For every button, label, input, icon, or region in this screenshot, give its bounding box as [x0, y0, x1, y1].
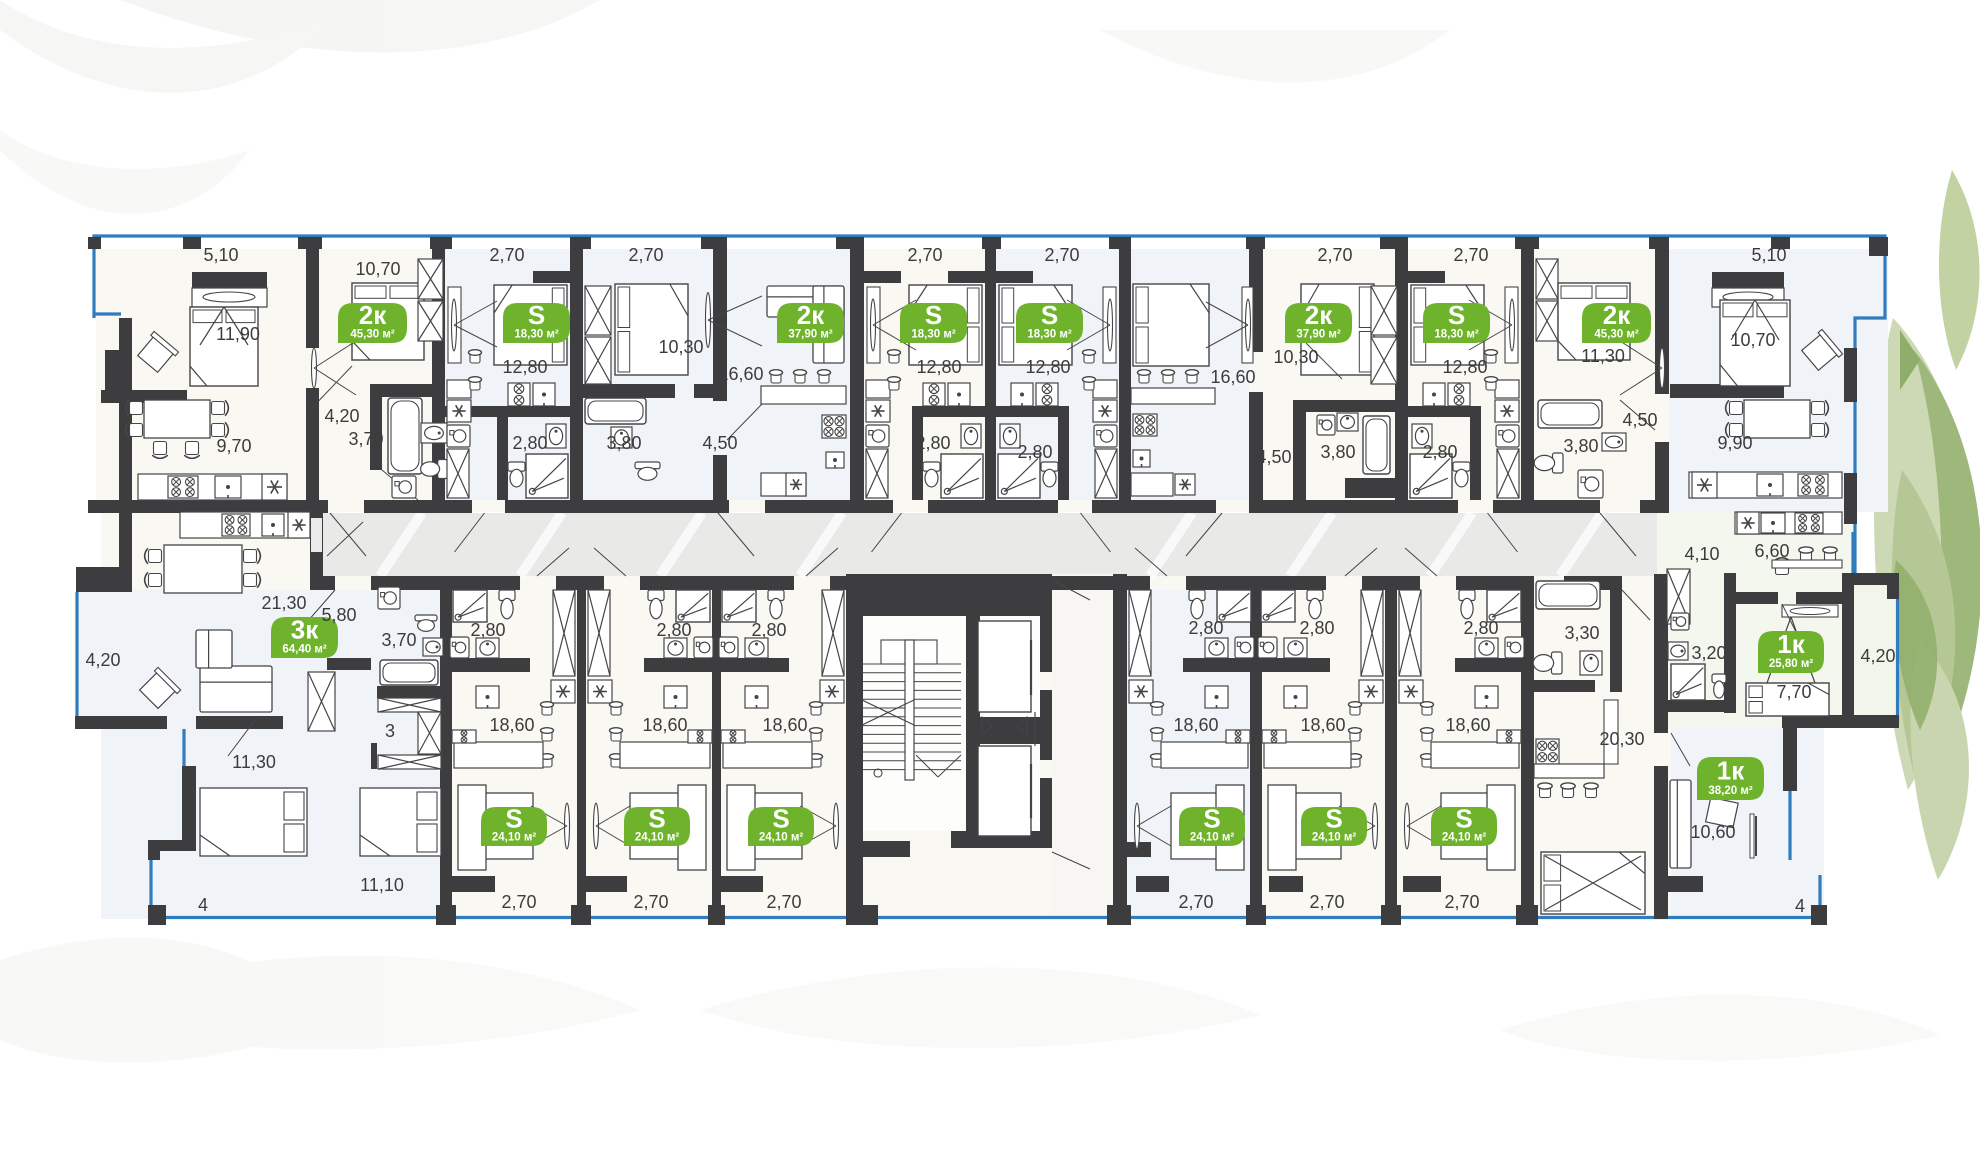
svg-text:S: S: [1455, 803, 1472, 833]
svg-text:4,50: 4,50: [702, 433, 737, 453]
svg-text:2к: 2к: [1603, 300, 1631, 330]
svg-text:12,80: 12,80: [1442, 357, 1487, 377]
svg-text:18,30 м²: 18,30 м²: [1027, 328, 1071, 340]
svg-text:4: 4: [1795, 896, 1805, 916]
svg-text:2,80: 2,80: [656, 620, 691, 640]
svg-text:2к: 2к: [1305, 300, 1333, 330]
svg-text:4,20: 4,20: [324, 406, 359, 426]
svg-text:1к: 1к: [1777, 629, 1805, 659]
svg-text:18,60: 18,60: [762, 715, 807, 735]
svg-text:2,70: 2,70: [907, 245, 942, 265]
svg-text:2,70: 2,70: [501, 892, 536, 912]
svg-text:2,70: 2,70: [1317, 245, 1352, 265]
svg-text:5,10: 5,10: [203, 245, 238, 265]
svg-text:5,80: 5,80: [321, 605, 356, 625]
svg-text:18,60: 18,60: [1300, 715, 1345, 735]
svg-text:10,70: 10,70: [355, 259, 400, 279]
svg-text:3,80: 3,80: [606, 433, 641, 453]
svg-text:9,90: 9,90: [1717, 433, 1752, 453]
svg-text:2,70: 2,70: [489, 245, 524, 265]
svg-text:2,70: 2,70: [1444, 892, 1479, 912]
svg-text:3,20: 3,20: [1691, 643, 1726, 663]
svg-text:2,70: 2,70: [1453, 245, 1488, 265]
svg-text:2к: 2к: [359, 300, 387, 330]
svg-text:3,70: 3,70: [381, 630, 416, 650]
svg-text:S: S: [1325, 803, 1342, 833]
svg-text:7,70: 7,70: [1776, 682, 1811, 702]
svg-text:9,70: 9,70: [216, 436, 251, 456]
svg-text:3,80: 3,80: [1320, 442, 1355, 462]
svg-text:10,70: 10,70: [1730, 330, 1775, 350]
svg-text:2,80: 2,80: [1017, 442, 1052, 462]
svg-text:20,30: 20,30: [1599, 729, 1644, 749]
svg-text:S: S: [925, 300, 942, 330]
svg-text:5,10: 5,10: [1751, 245, 1786, 265]
svg-text:S: S: [1041, 300, 1058, 330]
svg-text:2,80: 2,80: [915, 433, 950, 453]
svg-text:3: 3: [385, 721, 395, 741]
svg-text:2,70: 2,70: [633, 892, 668, 912]
svg-text:2,70: 2,70: [766, 892, 801, 912]
svg-text:18,30 м²: 18,30 м²: [514, 328, 558, 340]
svg-text:4,50: 4,50: [1256, 447, 1291, 467]
svg-text:10,30: 10,30: [658, 337, 703, 357]
svg-text:64,40 м²: 64,40 м²: [282, 643, 326, 655]
svg-text:24,10 м²: 24,10 м²: [1312, 832, 1356, 844]
svg-text:S: S: [505, 803, 522, 833]
svg-text:4: 4: [198, 895, 208, 915]
svg-text:18,60: 18,60: [489, 715, 534, 735]
svg-text:16,60: 16,60: [1210, 367, 1255, 387]
svg-text:2,70: 2,70: [1309, 892, 1344, 912]
svg-text:11,10: 11,10: [360, 875, 404, 895]
svg-text:2,80: 2,80: [1422, 442, 1457, 462]
svg-text:12,80: 12,80: [502, 357, 547, 377]
svg-text:2,80: 2,80: [470, 620, 505, 640]
svg-text:2,70: 2,70: [1044, 245, 1079, 265]
svg-text:24,10 м²: 24,10 м²: [1442, 832, 1486, 844]
svg-text:S: S: [528, 300, 545, 330]
svg-text:11,30: 11,30: [1581, 346, 1625, 366]
svg-text:2,80: 2,80: [751, 620, 786, 640]
svg-text:S: S: [1448, 300, 1465, 330]
svg-text:S: S: [772, 803, 789, 833]
svg-text:18,30 м²: 18,30 м²: [1434, 328, 1478, 340]
svg-text:4,20: 4,20: [85, 650, 120, 670]
svg-text:4,10: 4,10: [1684, 544, 1719, 564]
svg-text:3,30: 3,30: [1564, 623, 1599, 643]
svg-text:4,20: 4,20: [1860, 646, 1895, 666]
svg-text:37,90 м²: 37,90 м²: [1296, 328, 1340, 340]
svg-text:24,10 м²: 24,10 м²: [635, 832, 679, 844]
svg-text:10,30: 10,30: [1273, 347, 1318, 367]
svg-text:3,80: 3,80: [1563, 436, 1598, 456]
svg-text:2,80: 2,80: [512, 433, 547, 453]
svg-text:3,70: 3,70: [348, 429, 383, 449]
svg-text:18,60: 18,60: [1173, 715, 1218, 735]
svg-text:10,60: 10,60: [1690, 822, 1735, 842]
svg-text:2,80: 2,80: [1463, 618, 1498, 638]
svg-text:4,50: 4,50: [1622, 410, 1657, 430]
svg-text:24,10 м²: 24,10 м²: [759, 832, 803, 844]
svg-text:S: S: [1203, 803, 1220, 833]
svg-text:21,30: 21,30: [261, 593, 306, 613]
svg-text:18,60: 18,60: [1445, 715, 1490, 735]
svg-text:24,10 м²: 24,10 м²: [492, 832, 536, 844]
svg-text:S: S: [648, 803, 665, 833]
svg-text:24,10 м²: 24,10 м²: [1190, 832, 1234, 844]
svg-text:2к: 2к: [797, 300, 825, 330]
svg-text:25,80 м²: 25,80 м²: [1769, 658, 1813, 670]
svg-text:2,70: 2,70: [1178, 892, 1213, 912]
svg-text:11,90: 11,90: [216, 324, 260, 344]
svg-text:11,30: 11,30: [232, 752, 276, 772]
svg-text:12,80: 12,80: [1025, 357, 1070, 377]
svg-text:38,20 м²: 38,20 м²: [1708, 785, 1752, 797]
svg-text:18,30 м²: 18,30 м²: [911, 328, 955, 340]
svg-text:2,80: 2,80: [1299, 618, 1334, 638]
svg-text:45,30 м²: 45,30 м²: [350, 328, 394, 340]
svg-text:12,80: 12,80: [916, 357, 961, 377]
svg-text:18,60: 18,60: [642, 715, 687, 735]
svg-text:3к: 3к: [291, 614, 319, 644]
svg-text:2,80: 2,80: [1188, 618, 1223, 638]
svg-text:45,30 м²: 45,30 м²: [1594, 328, 1638, 340]
svg-text:6,60: 6,60: [1754, 541, 1789, 561]
svg-text:1к: 1к: [1717, 755, 1745, 785]
svg-text:2,70: 2,70: [628, 245, 663, 265]
svg-text:16,60: 16,60: [718, 364, 763, 384]
svg-text:37,90 м²: 37,90 м²: [788, 328, 832, 340]
